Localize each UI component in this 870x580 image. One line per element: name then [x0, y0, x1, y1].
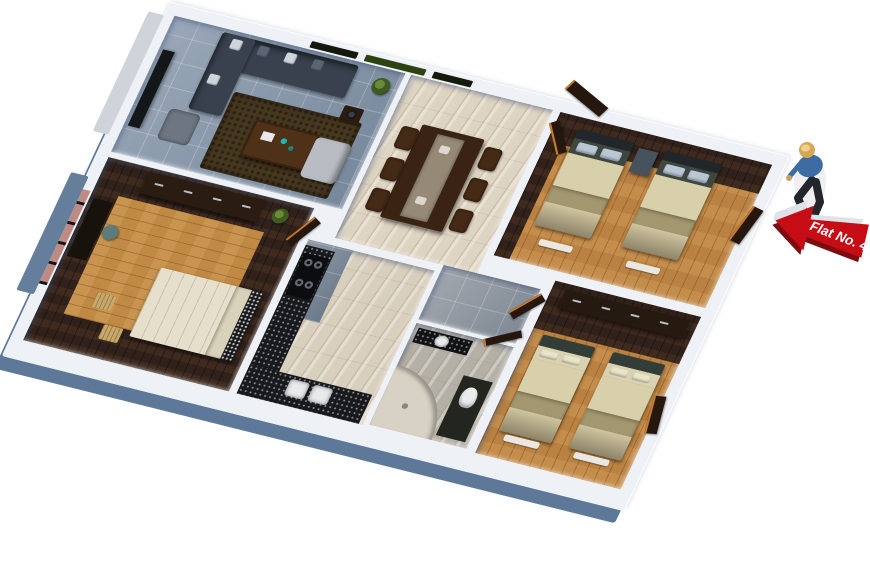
worker-helmet-highlight — [801, 145, 810, 152]
worker-hand — [786, 175, 792, 181]
armchair — [156, 108, 201, 147]
entrance-door — [565, 80, 609, 117]
foot-bench — [625, 260, 661, 275]
building-floor-plan — [3, 2, 789, 510]
potted-plant-icon — [269, 207, 291, 225]
dining-chair — [462, 177, 490, 203]
left-arrow-icon: Flat No. 4 — [767, 192, 870, 273]
foot-bench — [538, 239, 574, 254]
wicker-stool — [98, 324, 124, 343]
potted-plant-icon — [368, 76, 393, 97]
dining-chair — [447, 208, 475, 234]
dining-chair — [476, 146, 504, 172]
floor-plan-canvas: Flat No. 4 — [0, 0, 870, 580]
flat-number-arrow-sign: Flat No. 4 — [767, 192, 870, 273]
